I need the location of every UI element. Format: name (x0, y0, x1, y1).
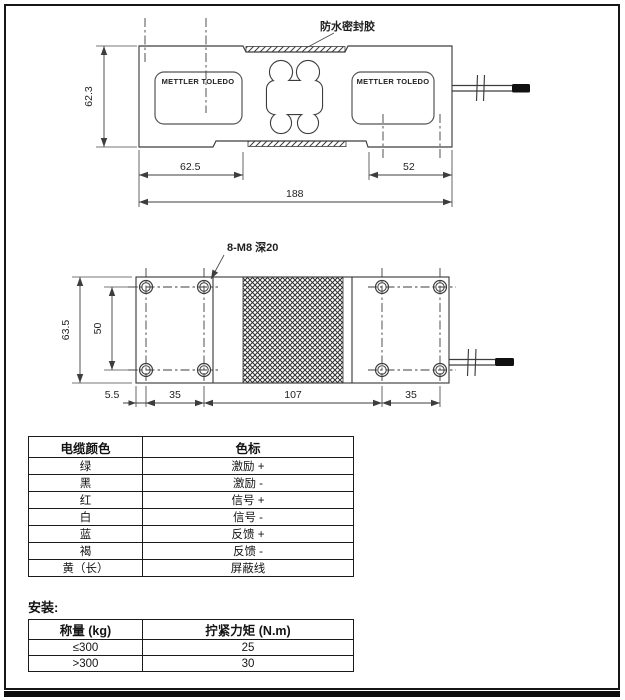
cell-code: 信号 - (143, 509, 354, 526)
page-bottom-edge (4, 691, 620, 697)
cell-color: 绿 (29, 458, 143, 475)
brand-text-left: METTLER TOLEDO (162, 77, 235, 86)
table-row: >300 30 (29, 656, 354, 672)
cell-color: 红 (29, 492, 143, 509)
install-section-title: 安装: (28, 597, 58, 616)
cable-side-view (452, 75, 530, 101)
table-row: 绿 激励 + (29, 458, 354, 475)
cell-code: 信号 + (143, 492, 354, 509)
dim-hole-row-span: 50 (92, 323, 104, 335)
table-row: ≤300 25 (29, 640, 354, 656)
sealant-strip-bottom (248, 141, 346, 147)
cell-color: 蓝 (29, 526, 143, 543)
cell-code: 激励 + (143, 458, 354, 475)
table-row: 白 信号 - (29, 509, 354, 526)
cell-capacity: >300 (29, 656, 143, 672)
cell-torque: 30 (143, 656, 354, 672)
cable-color-table: 电缆颜色 色标 绿 激励 + 黑 激励 - 红 信号 + 白 信号 - 蓝 (28, 436, 354, 577)
cable-tip (495, 358, 514, 366)
cell-code: 屏蔽线 (143, 560, 354, 577)
technical-drawing: METTLER TOLEDO METTLER TOLEDO 防水密封胶 (0, 0, 625, 430)
boot-crosshatch (243, 277, 343, 383)
table-row: 黑 激励 - (29, 475, 354, 492)
sealant-leader-line (306, 33, 334, 48)
dim-center-span: 107 (284, 389, 302, 401)
cable-top-view (449, 349, 514, 376)
dim-height: 62.3 (83, 86, 95, 107)
bolt-leader-line (211, 255, 224, 279)
sealant-label: 防水密封胶 (320, 19, 375, 33)
datasheet-page: METTLER TOLEDO METTLER TOLEDO 防水密封胶 (0, 0, 625, 700)
bolt-label: 8-M8 深20 (227, 240, 278, 254)
cell-code: 反馈 - (143, 543, 354, 560)
table-row: 红 信号 + (29, 492, 354, 509)
cell-color: 黑 (29, 475, 143, 492)
table-row: 黄（长） 屏蔽线 (29, 560, 354, 577)
header-cable-color: 电缆颜色 (29, 437, 143, 458)
cell-capacity: ≤300 (29, 640, 143, 656)
cell-color: 褐 (29, 543, 143, 560)
dim-hole-pitch-left: 35 (169, 389, 181, 401)
dim-plate-width: 63.5 (60, 320, 72, 341)
brand-text-right: METTLER TOLEDO (357, 77, 430, 86)
cell-torque: 25 (143, 640, 354, 656)
sealant-strip-top (246, 47, 345, 53)
header-torque: 拧紧力矩 (N.m) (143, 620, 354, 640)
table-header-row: 电缆颜色 色标 (29, 437, 354, 458)
cell-color: 黄（长） (29, 560, 143, 577)
header-capacity: 称量 (kg) (29, 620, 143, 640)
table-header-row: 称量 (kg) 拧紧力矩 (N.m) (29, 620, 354, 640)
install-torque-table: 称量 (kg) 拧紧力矩 (N.m) ≤300 25 >300 30 (28, 619, 354, 672)
side-view: METTLER TOLEDO METTLER TOLEDO 防水密封胶 (83, 18, 530, 207)
cell-color: 白 (29, 509, 143, 526)
dim-pocket-to-right: 52 (403, 161, 415, 173)
dim-total-length: 188 (286, 188, 304, 200)
cable-tip (512, 84, 530, 93)
dim-hole-pitch-right: 35 (405, 389, 417, 401)
table-row: 褐 反馈 - (29, 543, 354, 560)
table-row: 蓝 反馈 + (29, 526, 354, 543)
cell-code: 激励 - (143, 475, 354, 492)
top-view: 8-M8 深20 (60, 240, 514, 407)
dim-edge-to-hole: 5.5 (105, 389, 120, 401)
dim-left-to-pocket: 62.5 (180, 161, 201, 173)
cell-code: 反馈 + (143, 526, 354, 543)
header-color-code: 色标 (143, 437, 354, 458)
